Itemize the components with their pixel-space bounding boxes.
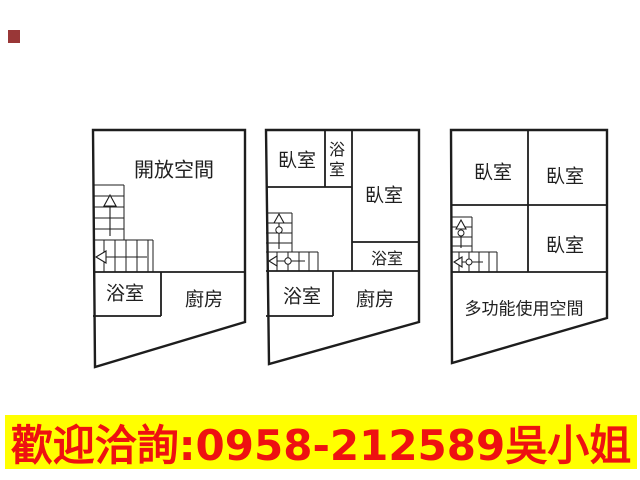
room-label-bathroom-top-2: 浴室 bbox=[328, 140, 346, 181]
room-label-kitchen-2: 廚房 bbox=[356, 285, 394, 312]
listing-image: 開放空間 浴室 廚房 臥室 浴室 臥室 浴室 浴室 廚房 臥室 臥室 臥室 多功… bbox=[0, 0, 640, 480]
room-label-bedroom-right-2: 臥室 bbox=[365, 181, 403, 208]
room-label-bathroom-left-2: 浴室 bbox=[283, 282, 321, 309]
room-label-bathroom-1: 浴室 bbox=[106, 279, 144, 306]
room-label-bathroom-right-2: 浴室 bbox=[371, 245, 403, 269]
room-label-bedroom-right-3: 臥室 bbox=[546, 231, 584, 258]
contact-text: 歡迎洽詢:0958-212589吳小姐 bbox=[11, 412, 631, 473]
room-label-multipurpose-3: 多功能使用空間 bbox=[465, 295, 584, 320]
room-label-open-space: 開放空間 bbox=[134, 154, 214, 183]
room-label-bedroom-top-left-3: 臥室 bbox=[474, 158, 512, 185]
floorplan-drawing bbox=[0, 0, 640, 480]
room-label-kitchen-1: 廚房 bbox=[185, 285, 223, 312]
room-label-bedroom-top-right-3: 臥室 bbox=[546, 162, 584, 189]
contact-banner: 歡迎洽詢:0958-212589吳小姐 bbox=[5, 415, 637, 469]
room-label-bedroom-top-2: 臥室 bbox=[278, 146, 316, 173]
